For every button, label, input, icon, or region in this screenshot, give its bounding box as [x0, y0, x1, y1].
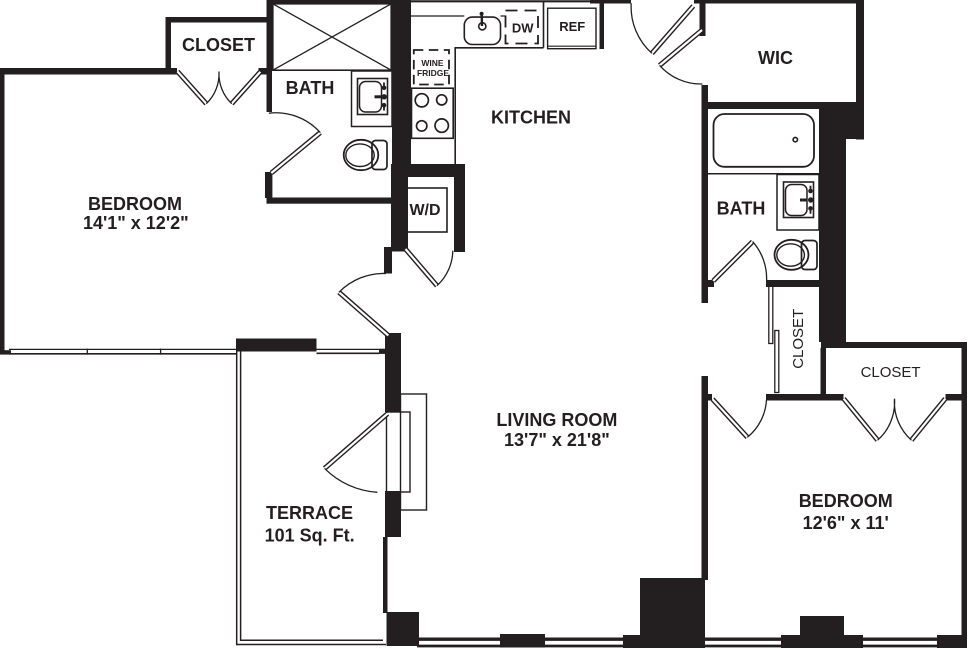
- svg-text:BEDROOM: BEDROOM: [799, 491, 893, 511]
- svg-text:101 Sq. Ft.: 101 Sq. Ft.: [265, 526, 355, 546]
- svg-text:BATH: BATH: [286, 78, 335, 98]
- svg-text:FRIDGE: FRIDGE: [417, 68, 449, 78]
- svg-text:CLOSET: CLOSET: [790, 309, 807, 369]
- svg-text:12'6" x 11': 12'6" x 11': [803, 513, 889, 533]
- svg-text:DW: DW: [512, 20, 534, 35]
- svg-text:13'7" x 21'8": 13'7" x 21'8": [504, 430, 610, 450]
- svg-text:W/D: W/D: [409, 202, 440, 219]
- svg-text:KITCHEN: KITCHEN: [491, 108, 571, 128]
- svg-text:WINE: WINE: [421, 58, 444, 68]
- svg-text:LIVING ROOM: LIVING ROOM: [496, 410, 617, 430]
- svg-text:BATH: BATH: [717, 199, 766, 219]
- svg-text:REF: REF: [559, 19, 585, 34]
- svg-text:TERRACE: TERRACE: [266, 503, 353, 523]
- svg-text:WIC: WIC: [758, 48, 793, 68]
- svg-text:BEDROOM: BEDROOM: [88, 194, 182, 214]
- svg-text:CLOSET: CLOSET: [861, 364, 921, 381]
- svg-text:CLOSET: CLOSET: [182, 35, 255, 55]
- svg-text:14'1" x 12'2": 14'1" x 12'2": [83, 213, 189, 233]
